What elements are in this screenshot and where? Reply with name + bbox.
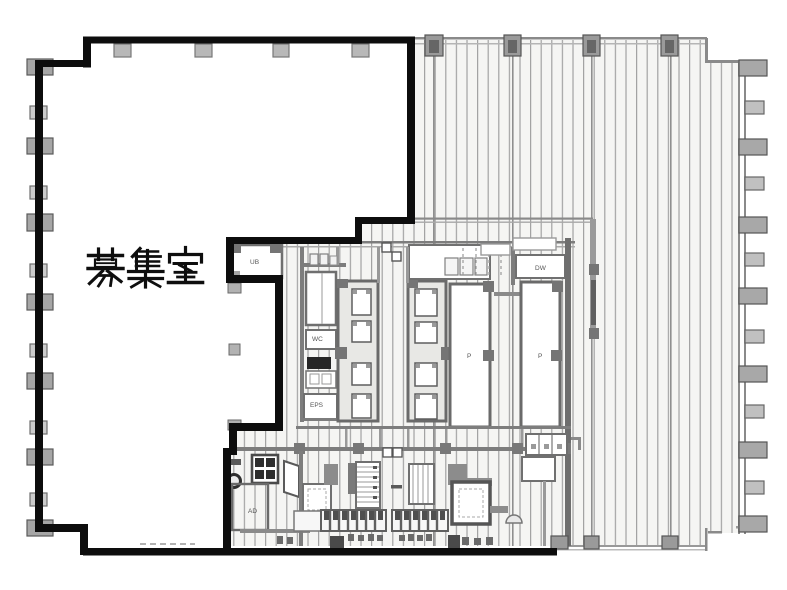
svg-text:P: P: [538, 353, 542, 360]
svg-text:P: P: [467, 353, 471, 360]
svg-text:WC: WC: [312, 336, 323, 343]
svg-text:DW: DW: [535, 265, 547, 272]
svg-text:EPS: EPS: [310, 402, 324, 409]
svg-text:UB: UB: [250, 259, 259, 266]
svg-text:AD: AD: [248, 508, 257, 515]
